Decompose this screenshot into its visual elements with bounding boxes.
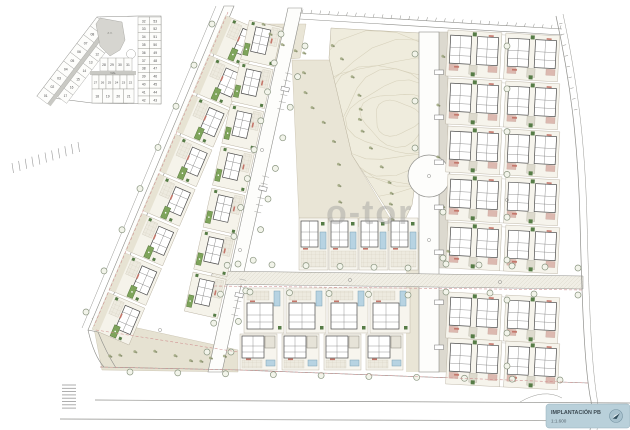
house-unit — [446, 222, 502, 271]
tree-tick — [551, 25, 552, 29]
tree-icon — [487, 290, 493, 296]
tree-tick — [382, 14, 383, 18]
key-plan-number: 50 — [153, 43, 157, 47]
tree-icon — [280, 135, 286, 141]
right-block-row — [446, 292, 560, 344]
house-unit — [446, 338, 502, 387]
tree-tick — [559, 23, 562, 24]
tree-icon — [504, 86, 510, 92]
house-unit — [446, 78, 502, 127]
tree-icon — [250, 257, 256, 263]
shrub-icon — [283, 44, 285, 46]
shrub-icon — [353, 76, 355, 78]
tree-tick — [471, 20, 472, 24]
tree-tick — [568, 77, 571, 78]
tree-icon — [504, 330, 510, 336]
tree-icon — [265, 196, 271, 202]
ramp-stripe — [12, 163, 14, 173]
tree-icon — [217, 291, 223, 297]
tree-tick — [542, 24, 543, 28]
shrub-icon — [363, 131, 365, 133]
car-icon — [435, 115, 444, 120]
key-plan-number: 13 — [89, 61, 93, 65]
house-unit — [299, 218, 328, 270]
shrub-icon — [342, 58, 344, 60]
tree-icon — [271, 60, 277, 66]
tree-tick — [400, 15, 401, 19]
tree-tick — [570, 88, 573, 89]
tree-icon — [223, 371, 229, 377]
tree-tick — [329, 11, 330, 15]
key-plan-number: 07 — [84, 41, 88, 45]
key-plan-number: 49 — [153, 51, 157, 55]
shrub-icon — [324, 122, 326, 124]
key-plan-number: 06 — [77, 50, 81, 54]
key-plan-number: 30 — [118, 63, 122, 67]
tree-icon — [155, 144, 161, 150]
tree-tick — [574, 109, 577, 110]
shrub-icon — [382, 166, 384, 168]
house-unit — [370, 288, 410, 333]
key-plan-number: 38 — [142, 67, 146, 71]
tree-icon — [412, 98, 418, 104]
tree-icon — [504, 297, 510, 303]
car-icon — [435, 205, 444, 210]
key-plan-number: 28 — [102, 63, 106, 67]
tree-tick — [533, 24, 534, 28]
tree-tick — [565, 55, 568, 56]
house-unit — [504, 341, 560, 390]
tree-icon — [191, 62, 197, 68]
car-icon — [435, 345, 444, 350]
plan-scale: 1:1.600 — [551, 419, 567, 424]
tree-tick — [498, 22, 499, 26]
house-unit — [366, 334, 403, 370]
shrub-icon — [120, 355, 122, 357]
tree-tick — [444, 18, 445, 22]
key-plan-number: 02 — [51, 85, 55, 89]
tree-tick — [302, 9, 303, 13]
right-block-row — [446, 338, 560, 390]
tree-icon — [295, 74, 301, 80]
house-unit — [194, 230, 236, 276]
key-plan-number: 43 — [153, 98, 157, 102]
ramp-stripe — [78, 142, 80, 152]
house-unit — [328, 288, 368, 333]
house-unit — [240, 334, 277, 370]
tree-icon — [251, 147, 257, 153]
watermark-text: o-tor — [326, 194, 413, 232]
tree-icon — [476, 262, 482, 268]
tree-icon — [303, 263, 309, 269]
key-plan-number: 24 — [115, 81, 119, 85]
tree-icon — [504, 43, 510, 49]
tree-icon — [209, 21, 215, 27]
tree-tick — [418, 17, 419, 21]
car-icon — [435, 300, 444, 305]
house-unit — [212, 146, 254, 192]
tree-tick — [524, 23, 525, 27]
tree-icon — [173, 103, 179, 109]
tree-tick — [453, 19, 454, 23]
key-plan-number: 27 — [94, 81, 98, 85]
tree-tick — [516, 23, 517, 27]
key-plan-number: 41 — [142, 90, 146, 94]
ramp-stripe — [65, 146, 67, 156]
shrub-icon — [390, 182, 392, 184]
tree-tick — [563, 45, 566, 46]
shrub-icon — [359, 95, 361, 97]
key-plan-number: 36 — [142, 51, 146, 55]
right-block-row — [446, 30, 560, 82]
key-plan-number: 22 — [129, 81, 133, 85]
shrub-icon — [201, 361, 203, 363]
tree-icon — [509, 263, 515, 269]
tree-icon — [101, 268, 107, 274]
tree-tick — [311, 10, 312, 14]
tree-icon — [575, 265, 581, 271]
shrub-icon — [333, 45, 335, 47]
tree-icon — [504, 257, 510, 263]
key-plan-number: 08 — [90, 33, 94, 37]
ramp-stripe — [32, 157, 34, 167]
tree-icon — [235, 318, 241, 324]
tree-icon — [337, 263, 343, 269]
tree-icon — [258, 227, 264, 233]
tree-icon — [504, 171, 510, 177]
shrub-icon — [296, 50, 298, 52]
tree-icon — [531, 291, 537, 297]
tree-icon — [175, 370, 181, 376]
tree-tick — [489, 21, 490, 25]
key-plan-number: 18 — [95, 95, 99, 99]
key-plan-number: 42 — [142, 98, 146, 102]
tree-tick — [320, 11, 321, 15]
key-plan-number: 20 — [116, 95, 120, 99]
car-icon — [435, 70, 444, 75]
key-plan-number: 32 — [142, 19, 146, 23]
tree-icon — [287, 290, 293, 296]
tree-tick — [355, 13, 356, 17]
tree-tick — [560, 25, 561, 29]
key-plan-number: 48 — [153, 59, 157, 63]
tree-tick — [346, 12, 347, 16]
tree-icon — [235, 261, 241, 267]
ramp-stripe — [45, 153, 47, 163]
shrub-icon — [438, 105, 440, 107]
tree-icon — [440, 255, 446, 261]
vertical-road — [419, 32, 439, 372]
key-plan-number: 01 — [44, 94, 48, 98]
key-plan-number: 12 — [95, 52, 99, 56]
key-plan-number: 31 — [126, 63, 130, 67]
tree-icon — [231, 233, 237, 239]
tree-tick — [364, 13, 365, 17]
shrub-icon — [361, 109, 363, 111]
tree-icon — [270, 372, 276, 378]
key-plan-number: 15 — [76, 77, 80, 81]
plan-title: IMPLANTACIÓN PB — [551, 408, 601, 416]
house-unit — [282, 334, 319, 370]
tree-icon — [265, 89, 271, 95]
shrub-icon — [313, 107, 315, 109]
car-icon — [435, 250, 444, 255]
house-unit — [446, 126, 502, 175]
key-plan-number: 52 — [153, 27, 157, 31]
tree-icon — [269, 262, 275, 268]
tree-icon — [247, 289, 253, 295]
ramp-stripe — [38, 155, 40, 165]
house-unit — [504, 129, 560, 178]
key-plan-number: 16 — [70, 86, 74, 90]
tree-icon — [412, 145, 418, 151]
tree-icon — [204, 349, 210, 355]
tree-icon — [228, 349, 234, 355]
shrub-icon — [211, 358, 213, 360]
ramp-stripe — [58, 148, 60, 158]
tree-icon — [504, 214, 510, 220]
key-plan-number: 04 — [64, 68, 68, 72]
tree-icon — [272, 165, 278, 171]
right-block-row — [446, 126, 560, 178]
shrub-icon — [225, 356, 227, 358]
tree-icon — [440, 209, 446, 215]
tree-icon — [405, 265, 411, 271]
title-block: IMPLANTACIÓN PB 1:1.600 — [546, 404, 630, 428]
tree-icon — [278, 31, 284, 37]
key-plan-number: 25 — [108, 81, 112, 85]
key-plan-number: 45 — [153, 83, 157, 87]
house-unit — [504, 177, 560, 226]
tree-icon — [366, 291, 372, 297]
tree-icon — [318, 373, 324, 379]
house-unit — [504, 33, 560, 82]
tree-icon — [405, 292, 411, 298]
right-block-row — [446, 78, 560, 130]
tree-tick — [391, 15, 392, 19]
tree-tick — [561, 34, 564, 35]
tree-icon — [244, 176, 250, 182]
right-block-row — [446, 174, 560, 226]
key-plan-number: 46 — [153, 75, 157, 79]
shrub-icon — [135, 351, 137, 353]
shrub-icon — [271, 34, 273, 36]
shrub-icon — [339, 164, 341, 166]
north-arrow-icon — [610, 410, 623, 423]
key-plan-number: 26 — [101, 81, 105, 85]
tree-icon — [542, 264, 548, 270]
key-plan-number: 44 — [153, 90, 157, 94]
tree-icon — [412, 51, 418, 57]
tree-icon — [224, 262, 230, 268]
car-icon — [435, 160, 444, 165]
shrub-icon — [443, 56, 445, 58]
shrub-icon — [191, 360, 193, 362]
key-plan-number: 34 — [142, 35, 146, 39]
key-plan-number: 40 — [142, 83, 146, 87]
key-plan-number: 03 — [57, 76, 61, 80]
key-plan-number: 21 — [127, 95, 131, 99]
ramp-stripe — [71, 144, 73, 154]
house-unit — [446, 292, 502, 341]
key-plan-number: 39 — [142, 75, 146, 79]
tree-icon — [443, 261, 449, 267]
key-plan-number: 37 — [142, 59, 146, 63]
house-unit — [203, 188, 245, 234]
tree-tick — [435, 18, 436, 22]
tree-tick — [567, 66, 570, 67]
key-plan: 0102030405060708091716151413121110Z.V.28… — [37, 16, 161, 106]
tree-tick — [507, 22, 508, 26]
bottom-road — [60, 400, 630, 421]
shrub-icon — [438, 157, 440, 159]
tree-icon — [238, 204, 244, 210]
tree-icon — [504, 129, 510, 135]
shrub-icon — [155, 351, 157, 353]
tree-icon — [302, 43, 308, 49]
site-plan-page: 0102030405060708091716151413121110Z.V.28… — [0, 0, 630, 430]
shrub-icon — [304, 72, 306, 74]
ramp-stripe — [19, 161, 21, 171]
ramp-stripe — [52, 150, 54, 160]
key-plan-number: 53 — [153, 19, 157, 23]
tree-icon — [287, 104, 293, 110]
tree-icon — [575, 292, 581, 298]
key-plan-number: 47 — [153, 67, 157, 71]
tree-icon — [504, 363, 510, 369]
key-plan-number: 51 — [153, 35, 157, 39]
tree-icon — [137, 186, 143, 192]
tree-icon — [414, 374, 420, 380]
shrub-icon — [449, 251, 451, 253]
house-unit — [504, 81, 560, 130]
house-unit — [446, 30, 502, 79]
tree-tick — [480, 20, 481, 24]
tree-icon — [509, 376, 515, 382]
right-boundary-road — [556, 16, 592, 430]
shrub-icon — [176, 355, 178, 357]
tree-icon — [211, 320, 217, 326]
tree-tick — [409, 16, 410, 20]
tree-icon — [443, 289, 449, 295]
tree-icon — [258, 118, 264, 124]
horizontal-street — [206, 271, 583, 289]
shrub-icon — [371, 148, 373, 150]
shrub-icon — [360, 119, 362, 121]
tree-tick — [572, 98, 575, 99]
tree-tick — [338, 12, 339, 16]
svg-text:VIAL: VIAL — [110, 71, 116, 75]
shrub-icon — [304, 53, 306, 55]
key-plan-number: 14 — [83, 69, 87, 73]
tree-tick — [462, 19, 463, 23]
svg-text:Z.V.: Z.V. — [107, 31, 112, 35]
site-plan-drawing: 0102030405060708091716151413121110Z.V.28… — [0, 0, 630, 430]
tree-icon — [83, 309, 89, 315]
tree-icon — [366, 373, 372, 379]
shrub-icon — [339, 185, 341, 187]
key-plan-number: 19 — [106, 95, 110, 99]
tree-icon — [326, 291, 332, 297]
shrub-icon — [334, 141, 336, 143]
manhole-icon — [158, 328, 161, 331]
shrub-icon — [306, 92, 308, 94]
tree-tick — [427, 17, 428, 21]
house-unit — [446, 174, 502, 223]
key-plan-number: 23 — [122, 81, 126, 85]
house-unit — [324, 334, 361, 370]
tree-icon — [119, 227, 125, 233]
shrub-icon — [264, 24, 266, 26]
ramp-stripe — [25, 159, 27, 169]
key-plan-number: 35 — [142, 43, 146, 47]
house-unit — [504, 295, 560, 344]
tree-icon — [371, 264, 377, 270]
key-plan-number: 29 — [110, 63, 114, 67]
key-plan-number: 05 — [70, 59, 74, 63]
key-plan-number: 17 — [64, 94, 68, 98]
tree-tick — [373, 14, 374, 18]
key-plan-number: 33 — [142, 27, 146, 31]
shrub-icon — [110, 356, 112, 358]
tree-icon — [127, 369, 133, 375]
